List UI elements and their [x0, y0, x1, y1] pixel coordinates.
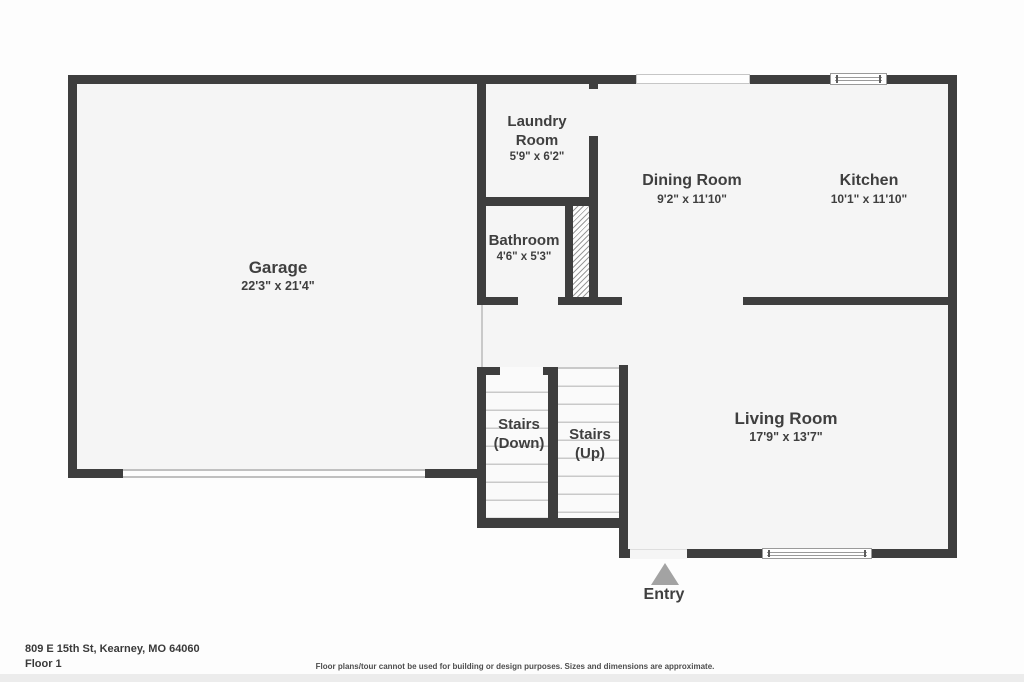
- window-post: [879, 75, 881, 83]
- room-dimensions: 5'9" x 6'2": [507, 151, 566, 164]
- room-name: Laundry: [507, 112, 566, 131]
- room-dimensions: 17'9" x 13'7": [735, 430, 838, 445]
- room-name: Stairs: [569, 425, 611, 444]
- wall-bathroom-right: [565, 206, 573, 297]
- hatch-chase: [573, 206, 589, 297]
- room-name: Stairs: [494, 415, 545, 434]
- wall-stairs-left: [477, 367, 486, 528]
- wall-laundry-right: [589, 136, 598, 305]
- room-dimensions: 9'2" x 11'10": [642, 192, 742, 206]
- entry-text: Entry: [644, 586, 685, 604]
- wall-bathroom-bottom-right: [558, 297, 622, 305]
- window-pane: [835, 77, 882, 81]
- laundry-door-opening: [589, 89, 598, 136]
- floor-number-label: Floor 1: [25, 658, 62, 670]
- room-name: (Down): [494, 434, 545, 453]
- room-name: Living Room: [735, 409, 838, 428]
- window-post: [768, 550, 770, 557]
- wall-living-left: [619, 365, 628, 558]
- entry-arrow-icon: [651, 563, 679, 585]
- wall-kitchen-living-divider: [743, 297, 957, 305]
- garage-overhead-door: [123, 469, 425, 478]
- bathroom-door-opening: [518, 297, 558, 305]
- wall-garage-right: [477, 84, 486, 305]
- window: [636, 74, 750, 84]
- room-label-kitchen: Kitchen 10'1" x 11'10": [831, 172, 907, 206]
- window-post: [864, 550, 866, 557]
- window: [830, 73, 887, 85]
- floor-plan-image: Garage 22'3" x 21'4" Laundry Room 5'9" x…: [0, 0, 1024, 682]
- bottom-bar: [0, 674, 1024, 682]
- outside-area: [477, 528, 628, 682]
- room-name: Bathroom: [489, 231, 560, 250]
- room-label-stairs-up: Stairs (Up): [569, 425, 611, 463]
- entry-label: Entry: [644, 586, 685, 604]
- room-name: Kitchen: [831, 172, 907, 190]
- room-dimensions: 4'6" x 5'3": [489, 251, 560, 264]
- wall-stairs-bottom: [477, 518, 628, 528]
- stairs-up-threshold: [558, 367, 619, 369]
- entry-door-opening: [630, 549, 687, 559]
- room-name: (Up): [569, 444, 611, 463]
- wall-stairs-top-left: [477, 367, 500, 375]
- window: [762, 548, 872, 559]
- wall-exterior-left: [68, 75, 77, 478]
- room-dimensions: 10'1" x 11'10": [831, 192, 907, 206]
- wall-stairs-middle: [548, 367, 558, 520]
- room-label-garage: Garage 22'3" x 21'4": [241, 258, 314, 294]
- window-post: [836, 75, 838, 83]
- wall-exterior-right: [948, 75, 957, 558]
- room-dimensions: 22'3" x 21'4": [241, 279, 314, 294]
- wall-bathroom-bottom-left: [477, 297, 518, 305]
- room-label-stairs-down: Stairs (Down): [494, 415, 545, 453]
- disclaimer-text: Floor plans/tour cannot be used for buil…: [316, 662, 715, 671]
- room-label-dining: Dining Room 9'2" x 11'10": [642, 172, 742, 206]
- wall-laundry-bottom: [477, 197, 598, 206]
- window-pane: [767, 552, 867, 556]
- room-name: Garage: [241, 258, 314, 277]
- room-label-bathroom: Bathroom 4'6" x 5'3": [489, 231, 560, 264]
- room-label-laundry: Laundry Room 5'9" x 6'2": [507, 112, 566, 164]
- stairs-door-opening: [500, 367, 543, 375]
- wall-exterior-top: [68, 75, 957, 84]
- garage-door-opening: [481, 305, 483, 367]
- room-label-living: Living Room 17'9" x 13'7": [735, 409, 838, 445]
- room-name: Room: [507, 131, 566, 150]
- room-name: Dining Room: [642, 172, 742, 190]
- property-address: 809 E 15th St, Kearney, MO 64060: [25, 643, 200, 655]
